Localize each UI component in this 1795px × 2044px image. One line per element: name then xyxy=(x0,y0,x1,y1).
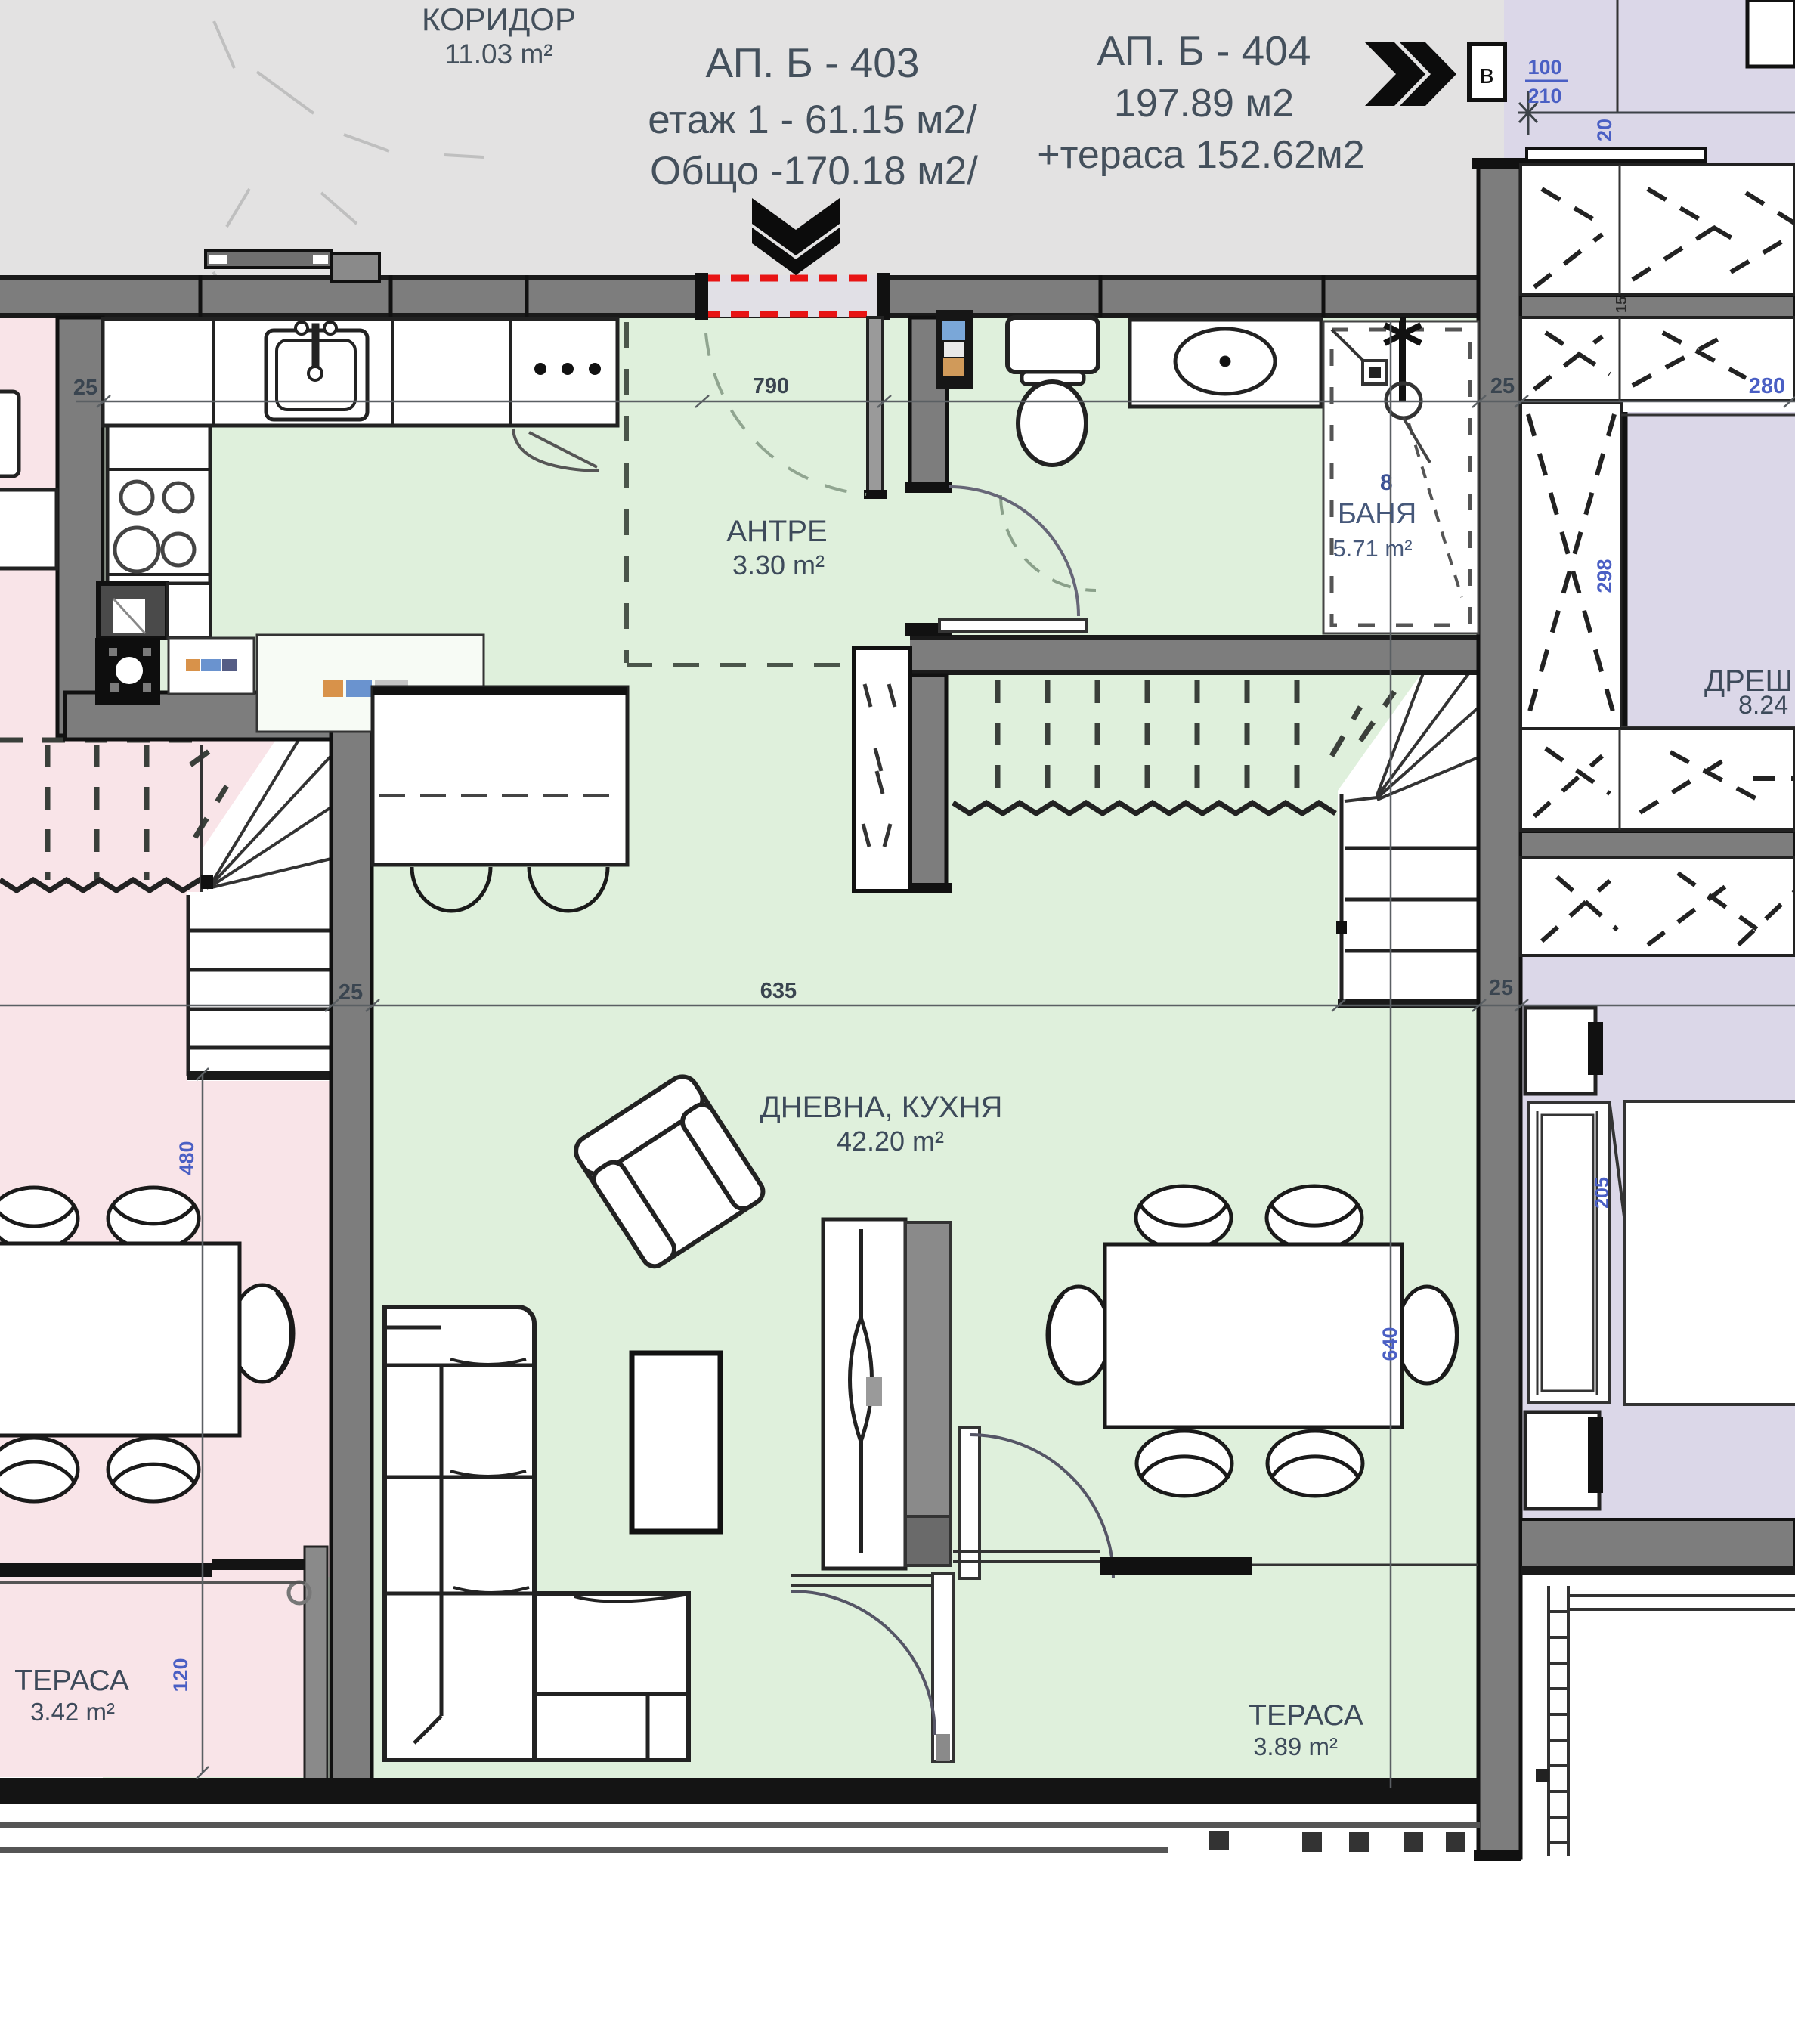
svg-text:етаж 1 - 61.15 м2/: етаж 1 - 61.15 м2/ xyxy=(648,98,977,142)
svg-text:Общо -170.18 м2/: Общо -170.18 м2/ xyxy=(650,149,978,194)
svg-text:790: 790 xyxy=(753,374,789,398)
svg-text:298: 298 xyxy=(1593,559,1616,593)
svg-text:197.89 м2: 197.89 м2 xyxy=(1114,82,1294,125)
svg-text:280: 280 xyxy=(1749,374,1785,398)
svg-text:АП. Б - 403: АП. Б - 403 xyxy=(706,39,920,86)
svg-text:ТЕРАСА: ТЕРАСА xyxy=(1249,1699,1363,1732)
svg-text:25: 25 xyxy=(339,980,363,1005)
svg-text:480: 480 xyxy=(175,1141,198,1175)
svg-text:20: 20 xyxy=(1593,119,1616,141)
svg-text:ДНЕВНА, КУХНЯ: ДНЕВНА, КУХНЯ xyxy=(760,1091,1003,1124)
svg-text:БАНЯ: БАНЯ xyxy=(1338,498,1416,530)
svg-text:5.71 m²: 5.71 m² xyxy=(1332,535,1412,562)
svg-text:3.42 m²: 3.42 m² xyxy=(30,1698,115,1726)
svg-text:3.30 m²: 3.30 m² xyxy=(732,550,825,581)
svg-text:8.24: 8.24 xyxy=(1738,691,1788,720)
svg-text:11.03 m²: 11.03 m² xyxy=(444,39,552,70)
svg-text:АП. Б - 404: АП. Б - 404 xyxy=(1097,27,1311,74)
svg-text:15: 15 xyxy=(1614,296,1630,313)
svg-text:25: 25 xyxy=(73,376,97,400)
svg-text:205: 205 xyxy=(1592,1177,1613,1209)
svg-text:635: 635 xyxy=(760,979,797,1003)
svg-text:100: 100 xyxy=(1527,56,1561,79)
svg-text:+тераса 152.62м2: +тераса 152.62м2 xyxy=(1037,133,1364,177)
svg-text:640: 640 xyxy=(1379,1327,1401,1361)
svg-text:АНТРЕ: АНТРЕ xyxy=(726,515,827,548)
svg-text:3.89 m²: 3.89 m² xyxy=(1253,1733,1338,1761)
svg-text:120: 120 xyxy=(169,1658,192,1692)
svg-text:25: 25 xyxy=(1490,374,1515,398)
svg-text:210: 210 xyxy=(1527,85,1561,107)
svg-text:25: 25 xyxy=(1489,976,1513,1000)
svg-text:42.20 m²: 42.20 m² xyxy=(837,1126,944,1157)
svg-text:ТЕРАСА: ТЕРАСА xyxy=(14,1665,129,1697)
svg-text:в: в xyxy=(1479,58,1493,89)
svg-text:КОРИДОР: КОРИДОР xyxy=(422,2,576,37)
